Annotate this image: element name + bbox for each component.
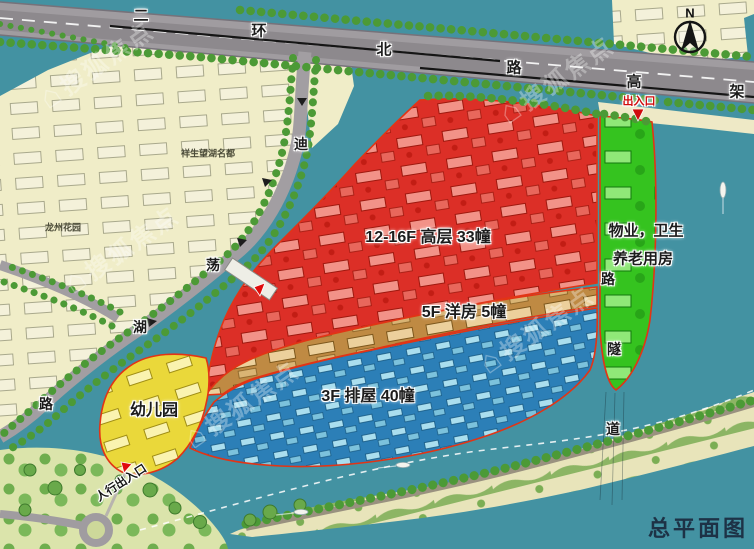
- compass-north-label: N: [685, 7, 694, 20]
- north-entrance-label: 出入口: [623, 97, 656, 108]
- zone-label-rowhouse: 3F 排屋 40幢: [321, 389, 414, 405]
- didang-road-char-4: 路: [39, 397, 53, 411]
- estate-name-label: 祥生望湖名都: [181, 150, 235, 159]
- page-title: 总平面图: [648, 518, 748, 540]
- didang-road-char-1: 迪: [294, 137, 308, 151]
- zone-label-garden-house: 5F 洋房 5幢: [422, 305, 506, 321]
- ring-road-char-3: 北: [376, 43, 391, 58]
- tunnel-char-3: 道: [606, 422, 620, 436]
- ring-road-char-5: 高: [626, 75, 641, 90]
- didang-road-char-2: 荡: [206, 258, 220, 272]
- zone-label-facility-line1: 物业，卫生: [608, 224, 683, 239]
- site-plan-map: 二 环 北 路 高 架 迪 荡 湖 路 路 隧 道 12-16F 高层 33幢 …: [0, 0, 754, 549]
- ring-road-char-6: 架: [729, 85, 744, 100]
- zone-label-kindergarten: 幼儿园: [130, 403, 178, 419]
- garden-name-label: 龙州花园: [45, 224, 81, 233]
- ring-road-char-2: 环: [251, 24, 266, 39]
- compass-icon: [675, 20, 705, 52]
- didang-road-char-3: 湖: [133, 320, 147, 334]
- tunnel-char-2: 隧: [607, 342, 621, 356]
- ring-road-char-1: 二: [133, 9, 148, 24]
- tunnel-char-1: 路: [601, 272, 615, 286]
- zone-label-facility-line2: 养老用房: [613, 252, 673, 267]
- zone-label-highrise: 12-16F 高层 33幢: [365, 230, 490, 246]
- ring-road-char-4: 路: [506, 61, 521, 76]
